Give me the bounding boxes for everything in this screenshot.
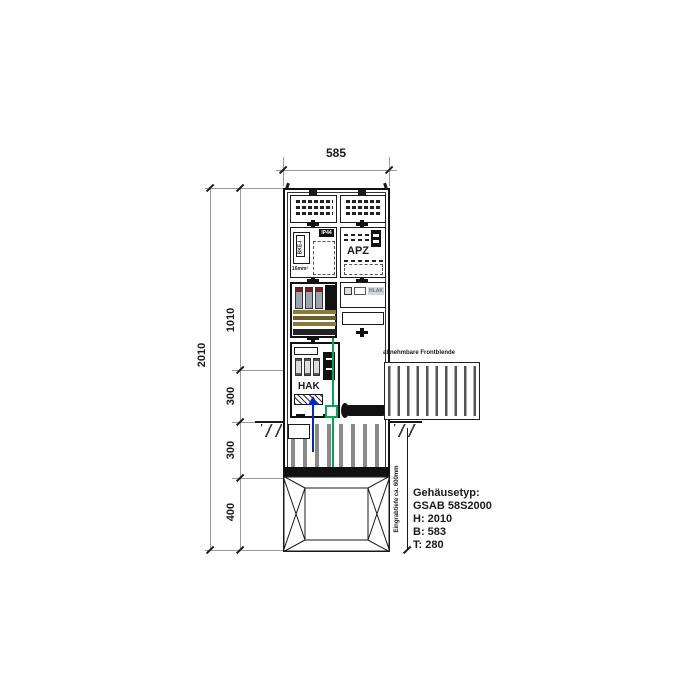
cabinet-bottom-plate [284,467,389,476]
soil-hatch-icon [394,424,417,437]
busbar-icon [293,322,336,326]
busbar-icon [293,310,336,314]
busbar-base-icon [293,329,336,335]
apz-dash-row [344,234,372,236]
front-panel-slats-icon [388,366,476,416]
ground-line-right [389,421,422,423]
dim-segment-300b: 300 [225,430,237,470]
dim-segment-1010: 1010 [225,300,237,340]
spec-line-model: GSAB 58S2000 [413,500,513,513]
burial-depth-line [407,428,408,550]
hlak-empty-rect [342,312,384,325]
hlak-window-icon [354,287,366,295]
hlak-clamp-icon [344,287,352,295]
conduit-cap-icon [341,403,349,418]
dim-line-top [276,170,397,171]
buried-junction-box [288,424,310,439]
dim-segment-400: 400 [225,492,237,532]
terminal-strip-icon [294,200,333,218]
terminal-strip-icon [344,200,382,218]
meter-board-box: BKE-I IP44 16mm² [290,227,337,278]
mounting-bracket-icon [356,328,368,337]
bke-label: BKE-I [299,238,304,258]
fuse-strip-icon [295,287,303,309]
nh-fuse-icon [304,358,311,376]
spec-line-height: H: 2010 [413,513,513,526]
dim-tick [403,546,411,554]
dim-top-width: 585 [315,146,357,160]
fuse-box-unit-icon [325,285,335,310]
hak-foot-icon [296,414,305,418]
wire-gauge-label: 16mm² [292,267,308,272]
apz-dashed-outline [344,264,383,275]
bke-inner-box: BKE-I [296,235,305,257]
apz-label: APZ [347,245,381,257]
enclosure-spec-block: Gehäusetyp: GSAB 58S2000 H: 2010 B: 583 … [413,487,513,552]
apz-box: APZ [340,227,386,278]
meter-dashed-outline [313,241,335,275]
terminal-strip-box-right [340,195,386,223]
front-panel-strip [384,362,480,420]
cable-conduit-icon [344,405,388,416]
ext-line-y550 [205,550,284,551]
nh-fuse-icon [295,358,302,376]
ground-line-left [255,421,284,423]
cabinet-technical-drawing: 585 2010 1010 300 300 400 BKE-I [0,0,700,700]
ext-line-y188 [205,188,284,189]
fuse-strip-icon [315,287,323,309]
hlak-label: HLAK [368,287,384,295]
apz-dash-row [344,260,383,262]
dim-segment-300a: 300 [225,376,237,416]
supply-cable-arrow-icon [308,396,318,405]
spec-line-type: Gehäusetyp: [413,487,513,500]
terminal-strip-box-left [290,195,337,223]
dim-line-total-height [210,188,211,550]
apz-dash-row [344,239,372,241]
ip-rating-tag: IP44 [319,229,334,237]
dim-total-height: 2010 [196,335,208,375]
burial-depth-label: Eingrabtiefe ca. 600mm [394,459,404,539]
fuse-strip-icon [305,287,313,309]
nh-fuse-icon [313,358,320,376]
hak-label: HAK [298,381,328,392]
ext-line-top-left [283,157,284,186]
busbar-icon [293,316,336,320]
front-panel-label: abnehmbare Frontblende [383,350,493,356]
concrete-base-drawing [283,476,390,552]
pe-terminal-green-box [325,405,338,418]
spec-line-depth: T: 280 [413,539,513,552]
hlak-box: HLAK [340,282,386,308]
hak-top-rect [294,347,318,355]
spec-line-width: B: 583 [413,526,513,539]
lifting-lug-icon [383,183,388,190]
ext-line-top-right [389,157,390,186]
soil-hatch-icon [261,424,282,437]
fuse-busbar-box [290,282,337,338]
